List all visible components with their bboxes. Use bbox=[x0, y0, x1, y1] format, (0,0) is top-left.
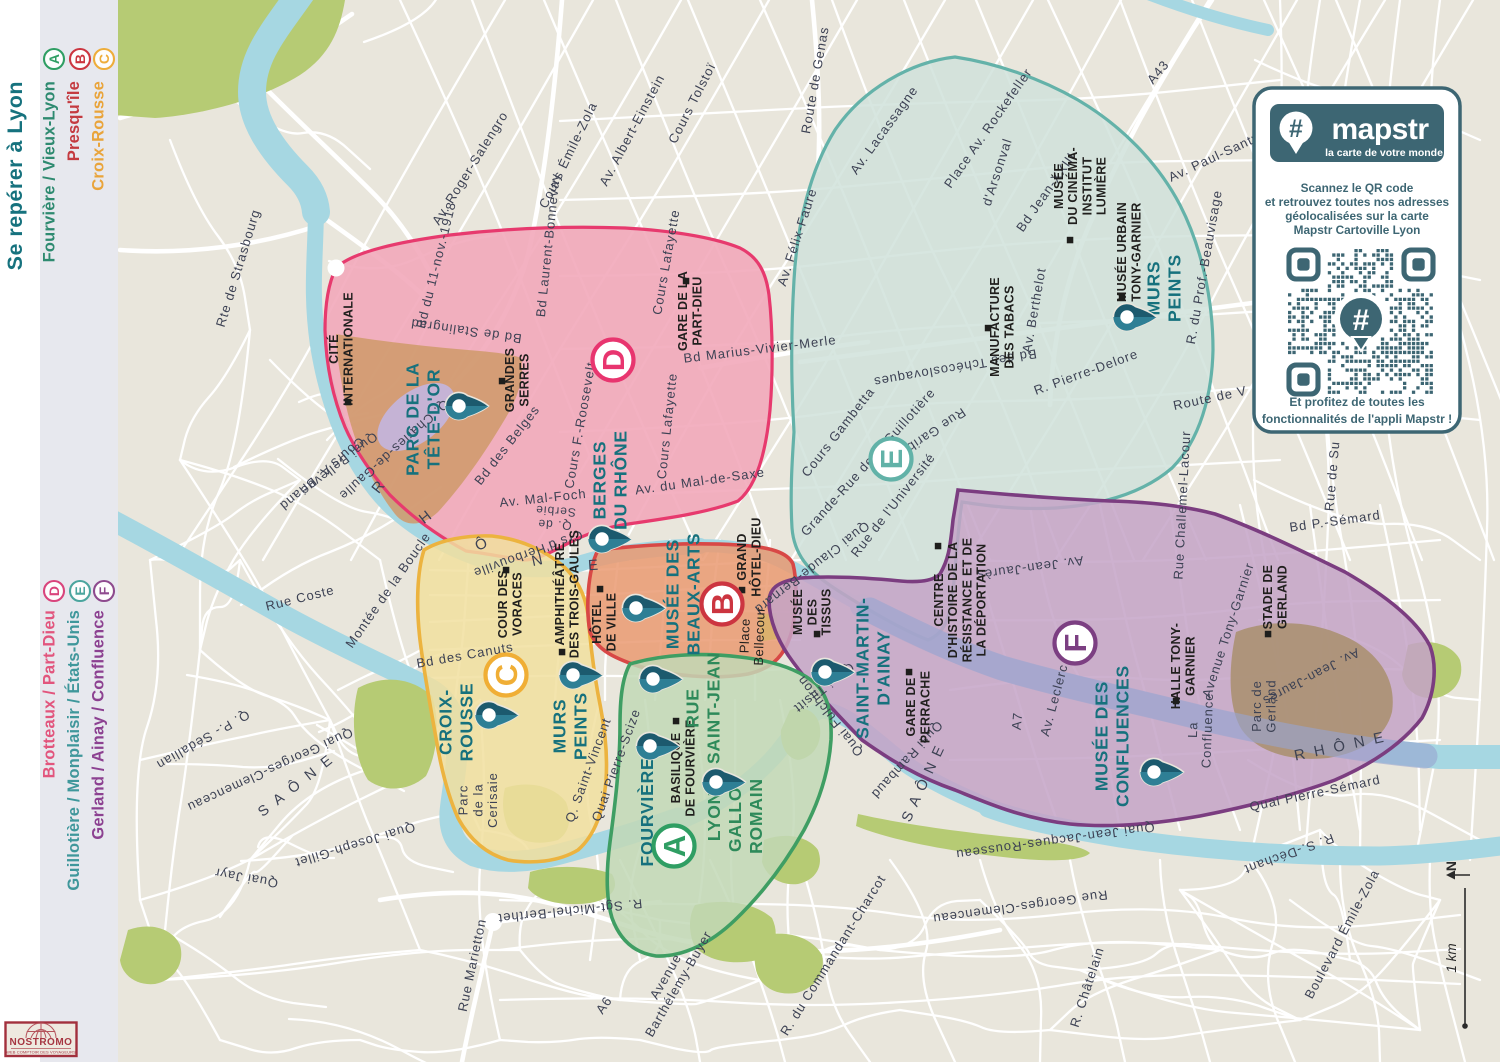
svg-text:DES TROIS-GAULES: DES TROIS-GAULES bbox=[567, 530, 581, 658]
svg-text:Parc: Parc bbox=[456, 785, 471, 816]
svg-text:CONFLUENCES: CONFLUENCES bbox=[1112, 665, 1132, 807]
svg-text:INTERNATIONALE: INTERNATIONALE bbox=[341, 292, 355, 406]
svg-text:B: B bbox=[705, 593, 740, 615]
svg-text:D'HISTOIRE DE LA: D'HISTOIRE DE LA bbox=[946, 542, 960, 659]
svg-text:fonctionnalités de l'appli Map: fonctionnalités de l'appli Mapstr ! bbox=[1262, 412, 1452, 426]
svg-text:Bellecour: Bellecour bbox=[751, 607, 768, 666]
svg-text:TISSUS: TISSUS bbox=[819, 589, 833, 636]
svg-text:A: A bbox=[657, 835, 692, 857]
svg-text:E: E bbox=[72, 586, 88, 595]
svg-text:D: D bbox=[46, 586, 62, 596]
svg-text:MUSÉE DES: MUSÉE DES bbox=[661, 539, 682, 649]
svg-text:C: C bbox=[96, 54, 112, 64]
svg-text:DE FOURVIÈRE: DE FOURVIÈRE bbox=[682, 719, 697, 816]
svg-text:GARE DE: GARE DE bbox=[904, 677, 918, 736]
svg-text:STADE DE: STADE DE bbox=[1261, 565, 1275, 630]
svg-text:D: D bbox=[596, 349, 631, 371]
svg-text:TONY-GARNIER: TONY-GARNIER bbox=[1129, 202, 1143, 301]
svg-text:GARNIER: GARNIER bbox=[1183, 636, 1197, 696]
svg-text:de la: de la bbox=[470, 783, 485, 816]
svg-text:HÔTEL-DIEU: HÔTEL-DIEU bbox=[748, 517, 763, 596]
svg-text:VORACES: VORACES bbox=[510, 572, 524, 636]
svg-text:PERRACHE: PERRACHE bbox=[918, 671, 932, 744]
svg-text:B: B bbox=[72, 54, 88, 64]
svg-text:1 km: 1 km bbox=[1444, 943, 1459, 972]
svg-text:HALLE TONY-: HALLE TONY- bbox=[1169, 623, 1183, 709]
svg-text:Gerland: Gerland bbox=[1264, 679, 1279, 732]
svg-text:PARC DE LA: PARC DE LA bbox=[402, 362, 422, 476]
svg-text:LA DÉPORTATION: LA DÉPORTATION bbox=[973, 543, 988, 656]
svg-text:HÔTEL: HÔTEL bbox=[589, 600, 604, 644]
svg-text:F: F bbox=[1058, 634, 1093, 653]
svg-text:CROIX-: CROIX- bbox=[435, 689, 455, 755]
svg-text:Se repérer à Lyon: Se repérer à Lyon bbox=[3, 81, 27, 270]
svg-text:GRAND: GRAND bbox=[735, 533, 749, 580]
svg-text:Presqu'île: Presqu'île bbox=[65, 81, 83, 161]
svg-text:DE VILLE: DE VILLE bbox=[604, 593, 618, 652]
svg-text:géolocalisées sur la carte: géolocalisées sur la carte bbox=[1285, 209, 1429, 223]
svg-text:TÊTE-D'OR: TÊTE-D'OR bbox=[422, 369, 443, 470]
svg-text:MUSÉE: MUSÉE bbox=[790, 589, 805, 635]
svg-text:F: F bbox=[96, 586, 112, 595]
svg-text:la carte de votre monde: la carte de votre monde bbox=[1325, 147, 1443, 159]
svg-text:Place: Place bbox=[737, 618, 753, 654]
svg-text:PART-DIEU: PART-DIEU bbox=[690, 276, 704, 345]
svg-text:BERGES: BERGES bbox=[589, 441, 609, 520]
svg-text:Croix-Rousse: Croix-Rousse bbox=[90, 81, 108, 191]
svg-text:CENTRE: CENTRE bbox=[932, 573, 946, 626]
svg-text:Et profitez de toutes les: Et profitez de toutes les bbox=[1289, 395, 1425, 409]
svg-text:PEINTS: PEINTS bbox=[1164, 254, 1184, 322]
svg-text:A7: A7 bbox=[1009, 711, 1026, 730]
svg-text:MURS: MURS bbox=[549, 699, 569, 754]
svg-text:MUSÉE: MUSÉE bbox=[1051, 163, 1066, 209]
svg-text:AMPHITHÉÂTRE: AMPHITHÉÂTRE bbox=[552, 543, 567, 646]
svg-text:Confluence: Confluence bbox=[1198, 692, 1216, 768]
svg-text:LUMIÈRE: LUMIÈRE bbox=[1093, 157, 1108, 215]
svg-text:et retrouvez toutes nos adress: et retrouvez toutes nos adresses bbox=[1265, 195, 1450, 209]
svg-text:Scannez le QR code: Scannez le QR code bbox=[1301, 181, 1414, 195]
svg-text:WEB COMPTOIR DES VOYAGEURS: WEB COMPTOIR DES VOYAGEURS bbox=[6, 1050, 76, 1055]
svg-text:COUR DES: COUR DES bbox=[496, 570, 510, 638]
svg-text:D'AINAY: D'AINAY bbox=[873, 630, 893, 705]
svg-text:MUSÉE DES: MUSÉE DES bbox=[1090, 681, 1111, 791]
svg-text:Mapstr Cartoville Lyon: Mapstr Cartoville Lyon bbox=[1294, 223, 1421, 237]
svg-text:ROMAIN: ROMAIN bbox=[746, 778, 766, 854]
svg-text:C: C bbox=[489, 664, 524, 686]
svg-text:PEINTS: PEINTS bbox=[570, 692, 590, 760]
svg-text:SERRES: SERRES bbox=[517, 353, 531, 406]
svg-text:INSTITUT: INSTITUT bbox=[1080, 157, 1094, 216]
svg-text:DES: DES bbox=[805, 599, 819, 626]
svg-text:Guillotière / Monplaisir / Éta: Guillotière / Monplaisir / États-Unis bbox=[64, 610, 83, 891]
svg-text:mapstr: mapstr bbox=[1331, 113, 1429, 146]
svg-text:ROUSSE: ROUSSE bbox=[456, 683, 476, 762]
svg-text:DES TABACS: DES TABACS bbox=[1002, 285, 1016, 368]
svg-text:SAINT-MARTIN-: SAINT-MARTIN- bbox=[852, 597, 872, 739]
svg-text:MURS: MURS bbox=[1143, 261, 1163, 316]
svg-text:Serbie: Serbie bbox=[535, 503, 577, 520]
svg-text:RUE: RUE bbox=[682, 688, 702, 727]
svg-text:GERLAND: GERLAND bbox=[1275, 565, 1289, 629]
svg-text:RÉSISTANCE ET DE: RÉSISTANCE ET DE bbox=[959, 538, 974, 663]
svg-text:A: A bbox=[46, 54, 62, 64]
svg-text:Parc de: Parc de bbox=[1249, 680, 1264, 732]
svg-text:DU RHÔNE: DU RHÔNE bbox=[609, 430, 630, 530]
svg-text:LYON: LYON bbox=[704, 791, 724, 841]
svg-text:DU CINÉMA-: DU CINÉMA- bbox=[1065, 147, 1080, 225]
svg-text:BEAUX-ARTS: BEAUX-ARTS bbox=[683, 533, 703, 656]
svg-text:La: La bbox=[1185, 721, 1201, 738]
svg-text:#: # bbox=[1289, 115, 1303, 143]
svg-text:Fourvière / Vieux-Lyon: Fourvière / Vieux-Lyon bbox=[41, 81, 59, 262]
svg-text:Brotteaux / Part-Dieu: Brotteaux / Part-Dieu bbox=[41, 610, 59, 778]
svg-text:Gerland / Ainay / Confluence: Gerland / Ainay / Confluence bbox=[90, 610, 108, 840]
svg-text:E: E bbox=[874, 449, 909, 470]
svg-text:MUSÉE URBAIN: MUSÉE URBAIN bbox=[1114, 202, 1129, 302]
svg-text:E: E bbox=[587, 557, 598, 575]
svg-text:Cerisaie: Cerisaie bbox=[485, 772, 500, 828]
svg-text:N: N bbox=[1443, 861, 1459, 871]
svg-text:NOSTROMO: NOSTROMO bbox=[10, 1037, 73, 1048]
svg-text:#: # bbox=[1353, 304, 1370, 337]
svg-text:CITÉ: CITÉ bbox=[326, 334, 341, 364]
svg-text:SAINT-JEAN: SAINT-JEAN bbox=[703, 652, 723, 764]
